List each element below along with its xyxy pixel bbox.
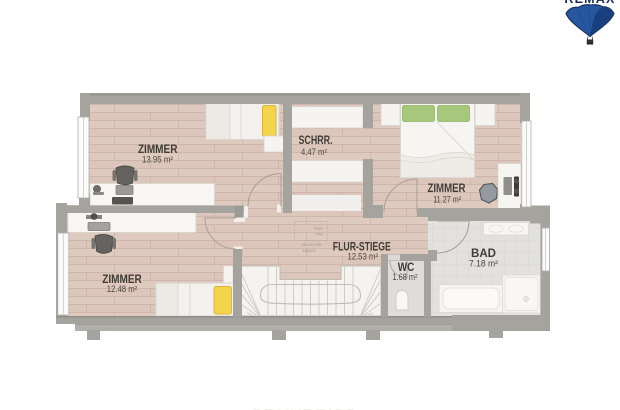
svg-text:GRUNDRISS: GRUNDRISS bbox=[250, 406, 356, 410]
svg-text:12.53 m²: 12.53 m² bbox=[347, 252, 378, 262]
svg-text:13.95 m²: 13.95 m² bbox=[142, 155, 173, 165]
svg-text:108/100: 108/100 bbox=[303, 249, 316, 253]
svg-text:SCHRR.: SCHRR. bbox=[299, 133, 333, 147]
svg-text:ZIMMER: ZIMMER bbox=[428, 181, 466, 195]
svg-text:11.27 m²: 11.27 m² bbox=[433, 194, 461, 204]
svg-text:4.47 m²: 4.47 m² bbox=[301, 147, 327, 157]
svg-text:FDB: FDB bbox=[315, 233, 323, 237]
svg-text:1.68 m²: 1.68 m² bbox=[393, 272, 418, 282]
svg-text:Ausn.: Ausn. bbox=[314, 227, 323, 231]
svg-text:12.48 m²: 12.48 m² bbox=[107, 284, 138, 294]
svg-text:VELUX FDB: VELUX FDB bbox=[302, 243, 323, 247]
svg-text:7.18 m²: 7.18 m² bbox=[469, 259, 498, 269]
